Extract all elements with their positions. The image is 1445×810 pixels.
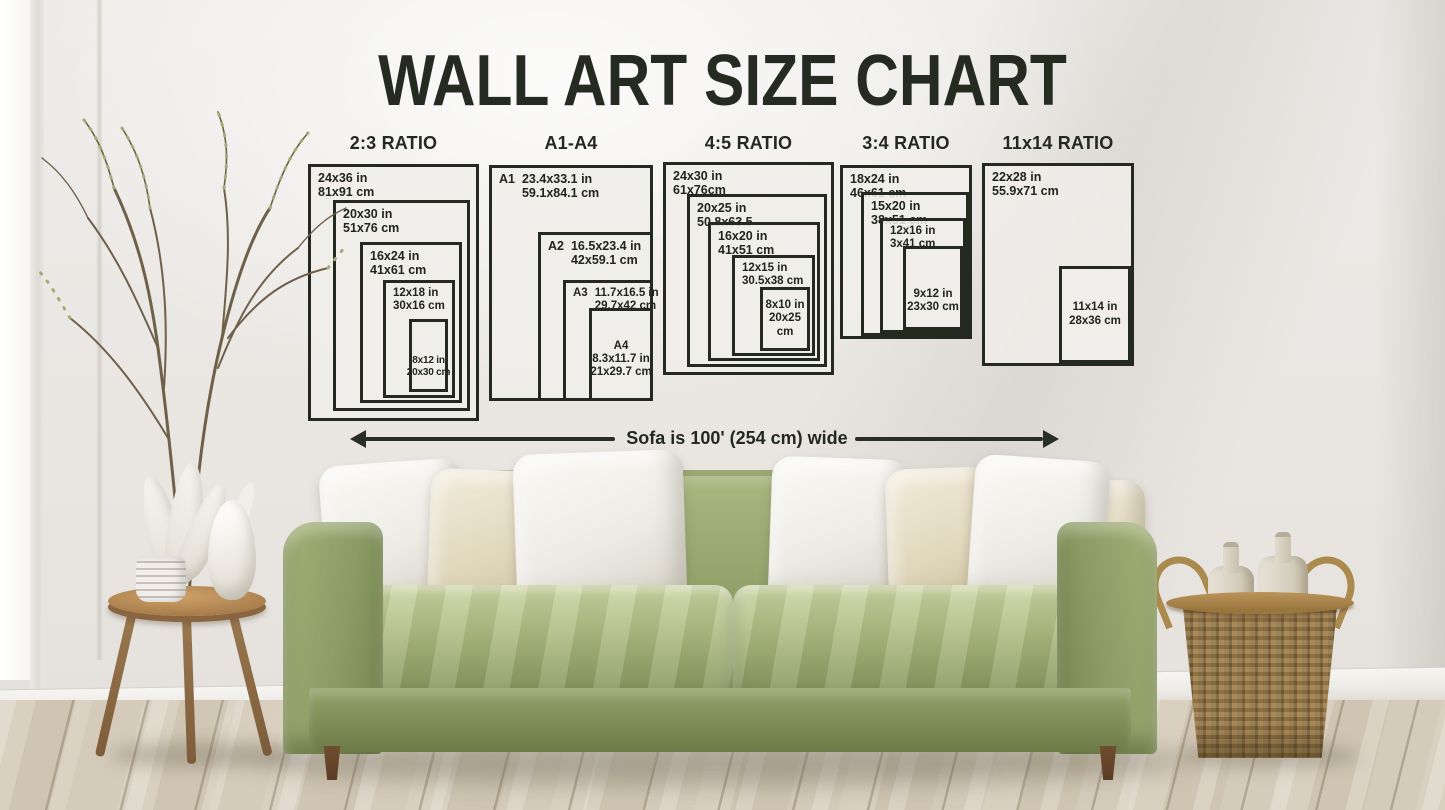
size-label: 20x30 in51x76 cm <box>343 207 399 236</box>
size-label: 9x12 in23x30 cm <box>906 249 960 327</box>
wall-art-size-chart-scene: WALL ART SIZE CHART 2:3 RATIO A1-A4 4:5 … <box>0 0 1445 810</box>
size-box-22x28: 22x28 in55.9x71 cm 11x14 in28x36 cm <box>982 163 1134 366</box>
right-arrow-icon <box>1043 430 1059 448</box>
sofa-width-note: Sofa is 100' (254 cm) wide <box>615 428 859 449</box>
size-box-18x24: 18x24 in46x61 cm 15x20 in38x51 cm 12x16 … <box>840 165 972 339</box>
size-box-12x16: 12x16 in3x41 cm 9x12 in23x30 cm <box>880 218 966 333</box>
size-box-16x24: 16x24 in41x61 cm 12x18 in30x16 cm 8x12 i… <box>360 242 462 403</box>
size-box-16x20: 16x20 in41x51 cm 12x15 in30.5x38 cm 8x10… <box>708 222 820 361</box>
striped-vase <box>136 556 186 602</box>
size-box-20x30: 20x30 in51x76 cm 16x24 in41x61 cm 12x18 … <box>333 200 470 411</box>
size-label: 16x24 in41x61 cm <box>370 249 426 278</box>
group-header-a1-a4: A1-A4 <box>489 133 653 154</box>
left-arrow-line <box>362 437 615 441</box>
woven-basket <box>1172 600 1348 758</box>
size-box-a1: A123.4x33.1 in59.1x84.1 cm A216.5x23.4 i… <box>489 165 653 401</box>
size-box-a3: A311.7x16.5 in29.7x42 cm A48.3x11.7 in21… <box>563 280 653 401</box>
group-header-3-4: 3:4 RATIO <box>840 133 972 154</box>
group-header-4-5: 4:5 RATIO <box>663 133 834 154</box>
size-label: A123.4x33.1 in59.1x84.1 cm <box>499 172 599 201</box>
size-box-15x20: 15x20 in38x51 cm 12x16 in3x41 cm 9x12 in… <box>861 192 969 336</box>
sofa-base <box>309 688 1131 752</box>
size-box-a4: A48.3x11.7 in21x29.7 cm <box>589 308 653 401</box>
size-label: 11x14 in28x36 cm <box>1062 269 1128 360</box>
size-box-11x14: 11x14 in28x36 cm <box>1059 266 1131 363</box>
basket-rim <box>1166 592 1354 614</box>
size-box-8x12: 8x12 in20x30 cm <box>409 319 448 392</box>
size-label: 8x12 in20x30 cm <box>412 322 445 389</box>
size-label: A216.5x23.4 in42x59.1 cm <box>548 239 641 268</box>
size-label: 8x10 in20x25 cm <box>763 290 807 348</box>
size-box-a2: A216.5x23.4 in42x59.1 cm A311.7x16.5 in2… <box>538 232 653 401</box>
size-box-9x12: 9x12 in23x30 cm <box>903 246 963 330</box>
group-header-11x14: 11x14 RATIO <box>982 133 1134 154</box>
right-arrow-line <box>855 437 1043 441</box>
size-box-24x30: 24x30 in61x76cm 20x25 in50.8x63.5 16x20 … <box>663 162 834 375</box>
size-label: 12x15 in30.5x38 cm <box>742 262 803 288</box>
size-box-8x10: 8x10 in20x25 cm <box>760 287 810 351</box>
size-box-12x18: 12x18 in30x16 cm 8x12 in20x30 cm <box>383 280 455 398</box>
green-sofa <box>283 450 1157 780</box>
size-box-12x15: 12x15 in30.5x38 cm 8x10 in20x25 cm <box>732 255 815 356</box>
size-label: 16x20 in41x51 cm <box>718 229 774 258</box>
size-label: A48.3x11.7 in21x29.7 cm <box>592 311 650 398</box>
size-box-20x25: 20x25 in50.8x63.5 16x20 in41x51 cm 12x15… <box>687 194 827 367</box>
size-label: 12x18 in30x16 cm <box>393 287 445 313</box>
size-label: 22x28 in55.9x71 cm <box>992 170 1059 199</box>
